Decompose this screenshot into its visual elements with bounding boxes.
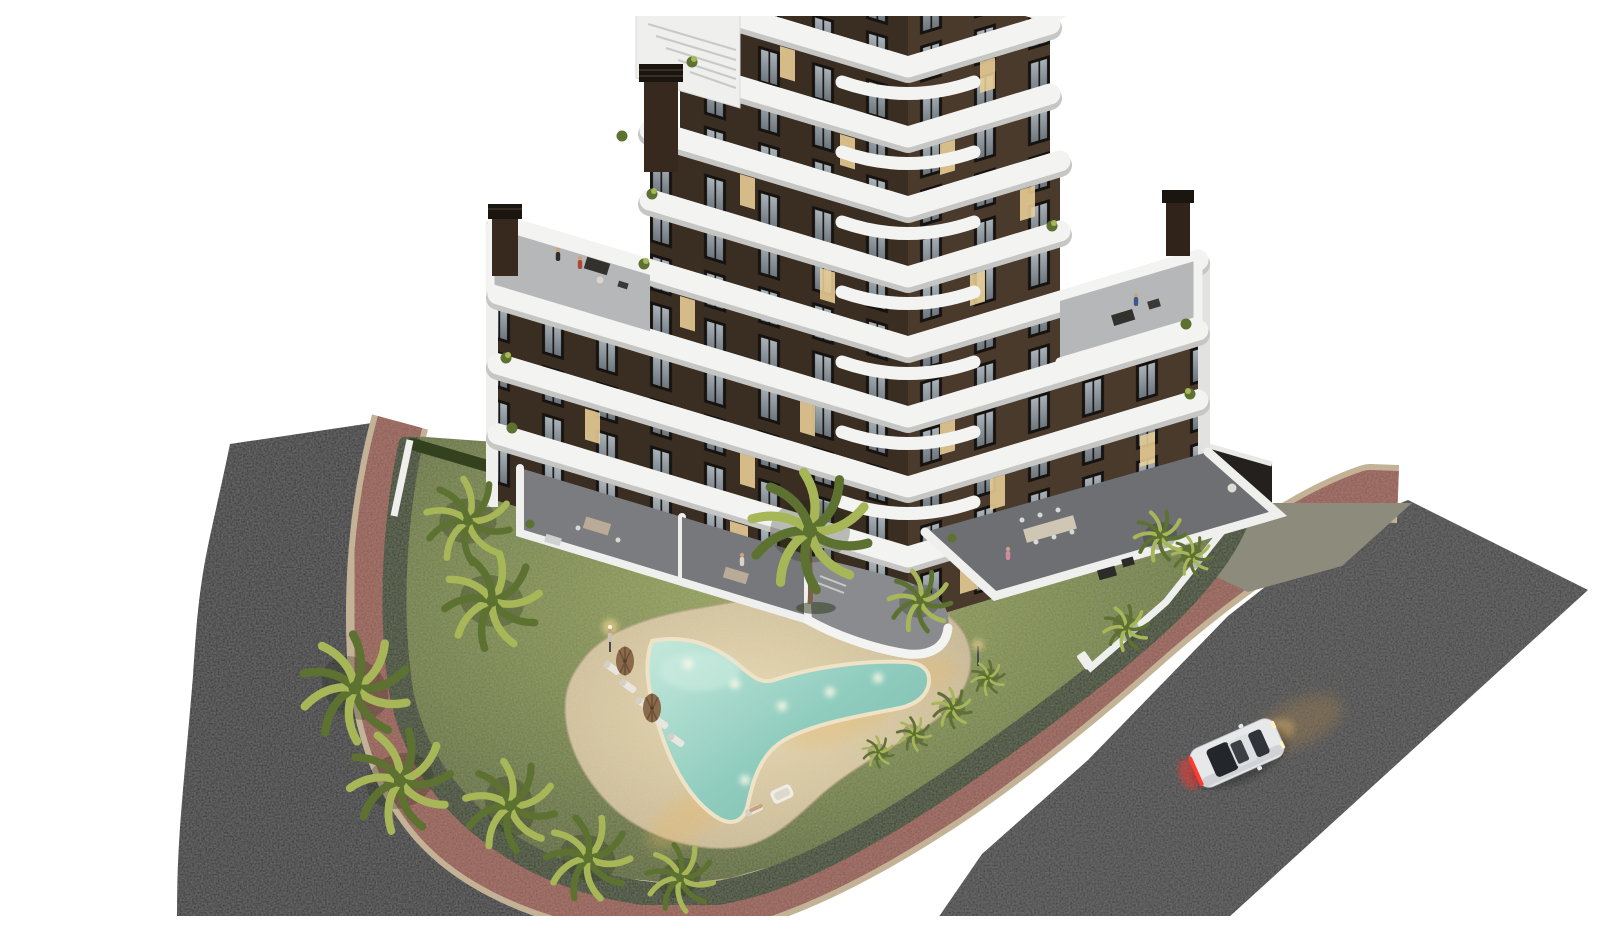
architectural-render-scene xyxy=(40,16,1600,916)
person-standing-pool xyxy=(608,629,612,642)
chimney-left xyxy=(488,204,522,276)
person-rooftop-left xyxy=(556,248,560,261)
person-rooftop-right xyxy=(1134,293,1138,306)
person-terrace-right xyxy=(1006,547,1010,560)
pool-shallow-sheen xyxy=(660,651,740,691)
person-terrace-left xyxy=(740,553,744,566)
chimney-top xyxy=(639,64,683,172)
render-canvas xyxy=(40,16,1600,916)
person-rooftop-left xyxy=(578,256,582,269)
chimney-right xyxy=(1162,190,1194,256)
